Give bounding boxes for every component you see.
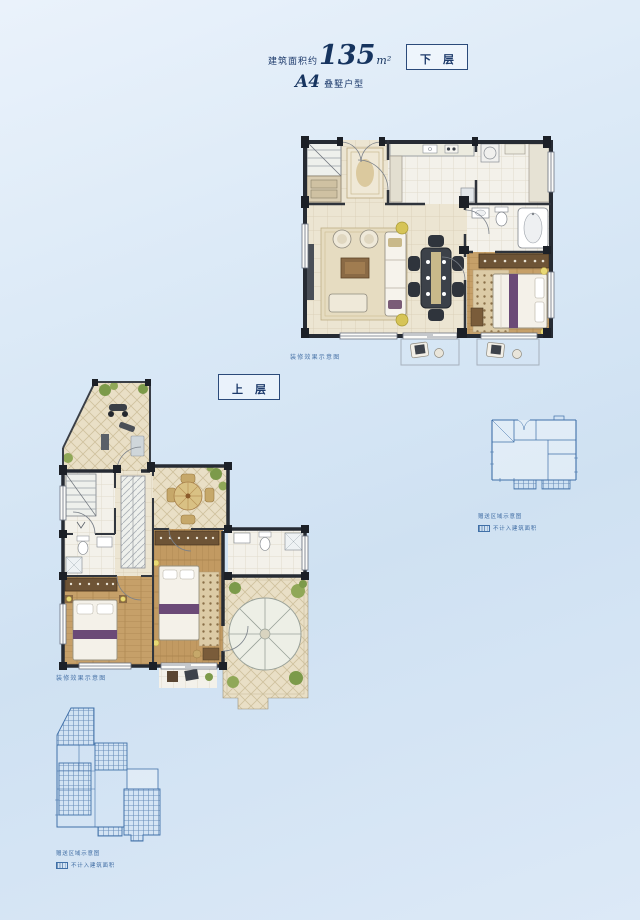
- keyplan-terrace-hatch: [57, 708, 94, 745]
- header-block: 建筑面积约135m² A4叠墅户型: [268, 42, 391, 92]
- legend-text: 不计入建筑面积: [493, 524, 537, 532]
- lower-floorplan: [285, 132, 570, 368]
- area-prefix: 建筑面积约: [268, 56, 318, 66]
- stairs-icon: [307, 142, 341, 202]
- plant-icon: [396, 222, 408, 234]
- entry-rug: [347, 148, 383, 198]
- unit-type: 叠墅户型: [324, 79, 364, 89]
- keyplan-balcony-hatch: [514, 480, 536, 489]
- keyplan-lower-caption: 赠送区域示意图: [478, 512, 522, 520]
- bed: [493, 274, 547, 328]
- building-area-line: 建筑面积约135m²: [268, 42, 391, 69]
- unit-code: A4: [295, 72, 320, 92]
- upper-floorplan: [53, 376, 315, 711]
- coffee-table: [341, 258, 369, 278]
- keyplan-bath-block: [127, 769, 158, 789]
- lamp-icon: [541, 268, 548, 275]
- keyplan-body: [492, 420, 576, 480]
- plant-icon: [396, 314, 408, 326]
- hatch-legend-icon: [478, 525, 490, 532]
- area-value: 135: [319, 40, 375, 71]
- corridor-closet: [121, 476, 145, 568]
- unit-type-line: A4叠墅户型: [268, 72, 391, 92]
- keyplan-leisure-hatch: [95, 743, 127, 770]
- balcony: [401, 339, 539, 365]
- keyplan-balcony-hatch: [98, 827, 122, 836]
- wardrobe: [479, 254, 549, 268]
- keyplan-balcony-hatch: [542, 480, 570, 489]
- upper-plan-caption: 装修效果示意图: [56, 673, 106, 682]
- bench: [471, 308, 483, 326]
- keyplan-bigterrace-hatch: [124, 789, 160, 841]
- sofa: [385, 232, 406, 316]
- keyplan-lower: [478, 408, 590, 508]
- hatch-legend-icon: [56, 862, 68, 869]
- keyplan-upper-legend: 不计入建筑面积: [56, 861, 115, 869]
- keyplan-lower-legend: 不计入建筑面积: [478, 524, 537, 532]
- lower-floor-label: 下层: [406, 44, 468, 70]
- keyplan-upper: [53, 705, 165, 845]
- floorplan-poster: 建筑面积约135m² A4叠墅户型 下层: [0, 0, 640, 920]
- lower-plan-caption: 装修效果示意图: [290, 352, 340, 361]
- legend-text: 不计入建筑面积: [71, 861, 115, 869]
- area-unit: m²: [376, 54, 391, 67]
- keyplan-upper-caption: 赠送区域示意图: [56, 849, 100, 857]
